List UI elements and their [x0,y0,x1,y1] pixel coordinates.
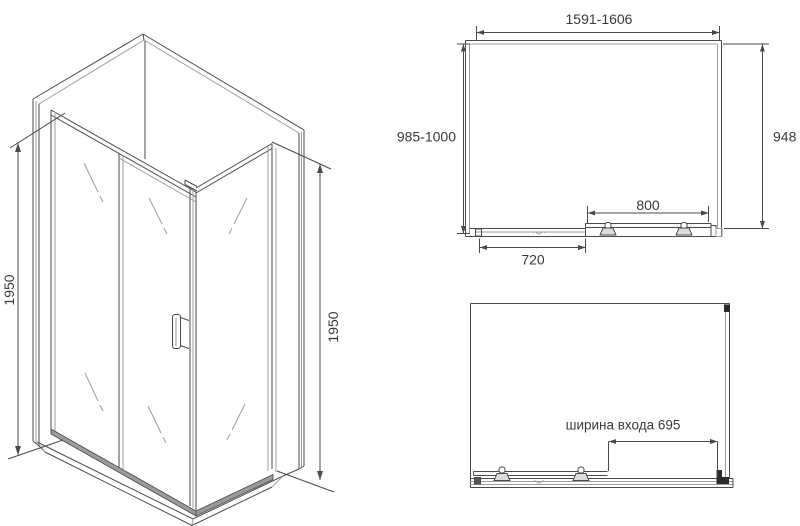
wall-left-top-edge [33,34,143,99]
iso-labels: 1950 1950 [1,274,341,342]
side-panel-label: 948 [773,129,797,145]
door-width-label: 800 [636,197,660,213]
arrow-fixed-left [480,245,488,250]
technical-drawing-page: 1950 1950 [0,0,800,526]
door-handle-mount-bottom [181,346,190,349]
front-linework [471,304,734,488]
front-roller-bracket-2 [573,474,589,481]
arrow-side-top [760,44,765,52]
arrow-door-left [588,211,596,216]
arrow-fixed-right [578,245,586,250]
wall-right-top-edge [143,34,304,130]
arrow-door-right [701,211,709,216]
plan-view: 1591-1606 985-1000 948 800 720 [397,11,797,268]
arrow-side-bottom [760,221,765,229]
fixed-panel-label: 720 [521,252,545,268]
front-roller-wheel-1 [499,467,505,473]
front-top-right-block [724,305,730,313]
plan-labels: 1591-1606 985-1000 948 800 720 [397,11,797,268]
front-roller-bracket-1 [494,474,510,481]
bottom-rail-side [196,475,273,517]
iso-linework [8,34,334,526]
drawing-canvas: 1950 1950 [0,0,800,526]
arrow-entrance-left [609,439,617,444]
arrow-down-right [317,471,323,480]
glass-top-rail-side [196,144,272,189]
dim-ext-right-bottom [277,471,334,492]
wall-right-top-inner [144,40,299,133]
glass-sparkles [84,163,247,443]
plan-linework [457,26,769,253]
front-labels: ширина входа 695 [566,418,681,433]
arrow-width-left [477,30,485,35]
arrow-down-left [15,446,21,455]
arrow-width-right [712,30,720,35]
door-handle-mount-top [181,318,190,321]
wall-left-top-inner [39,40,144,104]
front-roller-wheel-2 [578,467,584,473]
tray-edge-right [272,476,283,487]
depth-range-label: 985-1000 [397,129,456,145]
width-range-label: 1591-1606 [566,11,633,27]
front-view: ширина входа 695 [471,304,734,488]
height-label-right: 1950 [325,311,341,342]
glass-top-rail-side-2 [196,149,272,194]
dim-ext-left-top [10,113,65,148]
plan-right-bracket [711,226,716,237]
tray-v-joint [192,519,193,526]
plan-roller-bracket-1 [600,228,616,235]
front-left-end-bracket [475,478,481,485]
height-label-left: 1950 [1,274,17,305]
arrow-entrance-right [710,439,718,444]
entrance-width-label: ширина входа 695 [566,418,681,433]
iso-view: 1950 1950 [1,34,341,526]
plan-roller-bracket-2 [676,228,692,235]
front-right-stopper [717,470,730,484]
door-top-edge [119,158,196,202]
